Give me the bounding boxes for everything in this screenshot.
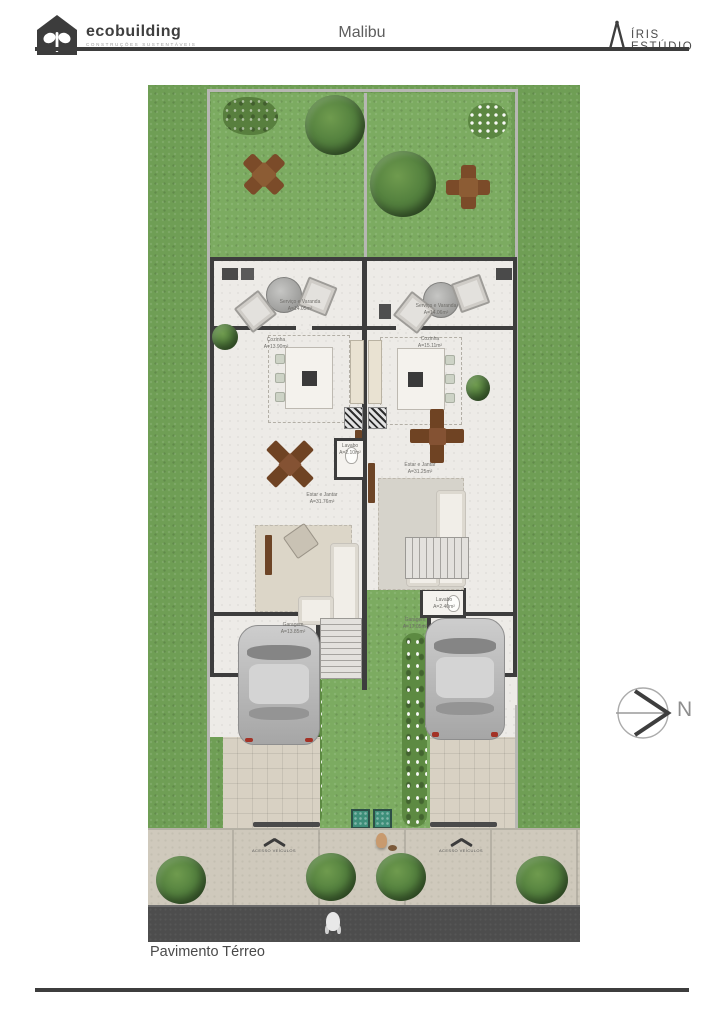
room-label-garagem-right: Garagem A=17.05m² — [377, 617, 453, 630]
room-label-garagem-left: Garagem A=13.85m² — [255, 622, 331, 635]
street-tree — [376, 853, 426, 901]
street — [148, 905, 580, 942]
north-compass: N — [605, 680, 700, 745]
compass-icon — [605, 680, 673, 745]
room-area: A=2.10m² — [330, 450, 370, 457]
room-area: A=31.25m² — [382, 469, 458, 476]
iris-estudio-icon — [607, 19, 627, 49]
front-gate-left — [253, 822, 320, 827]
entry-mat — [368, 407, 387, 429]
center-lawn-left — [320, 679, 362, 828]
plan-sheet: ecobuilding CONSTRUÇÕES SUSTENTÁVEIS Mal… — [0, 0, 724, 1024]
room-area: A=14.05m² — [262, 306, 338, 313]
ramp-arrow-left — [263, 837, 285, 847]
entry-mat — [344, 407, 363, 429]
staircase-right — [405, 537, 469, 579]
white-flower-bed — [468, 103, 508, 139]
cyclist — [326, 912, 340, 931]
room-area: A=15.11m² — [392, 343, 468, 350]
north-label: N — [677, 698, 692, 722]
flower-bed — [223, 97, 278, 135]
kitchen-island-left — [285, 347, 333, 409]
room-label-estar-left: Estar e Jantar A=31.76m² — [284, 492, 360, 505]
shrub — [466, 375, 490, 401]
street-tree — [156, 856, 206, 904]
room-label-cozinha-right: Cozinha A=15.11m² — [392, 336, 468, 349]
site-plan: ACESSO VEÍCULOS ACESSO VEÍCULOS Serviço … — [148, 85, 580, 940]
room-area: A=13.85m² — [255, 629, 331, 636]
kitchen-counter-left — [350, 340, 364, 404]
grill-appliance — [222, 268, 238, 280]
room-label-lavabo-left: Lavabo A=2.10m² — [330, 443, 370, 456]
garden-table-right — [446, 165, 490, 209]
water-heater — [379, 304, 391, 319]
utility-meter — [351, 809, 370, 829]
room-label-cozinha-left: Cozinha A=13.90m² — [238, 337, 314, 350]
car-right — [425, 618, 505, 740]
sidewalk — [148, 828, 580, 907]
ramp-label-right: ACESSO VEÍCULOS — [436, 848, 486, 853]
footer-rule — [35, 988, 689, 992]
room-area: A=2.40m² — [424, 604, 464, 611]
sideboard — [265, 535, 272, 575]
kitchen-counter-right — [368, 340, 382, 404]
tree — [370, 151, 436, 217]
sideboard — [368, 463, 375, 503]
ramp-arrow-right — [450, 837, 472, 847]
utility-meter — [373, 809, 392, 829]
garden-divider-fence — [364, 93, 367, 257]
room-area: A=17.05m² — [377, 624, 453, 631]
room-area: A=31.76m² — [284, 499, 360, 506]
room-label-varanda-left: Serviço e Varanda A=14.05m² — [262, 299, 338, 312]
grill-appliance — [496, 268, 512, 280]
shrub — [212, 324, 238, 350]
front-gate-right — [430, 822, 497, 827]
room-area: A=14.06m² — [398, 310, 474, 317]
street-tree — [306, 853, 356, 901]
room-area: A=13.90m² — [238, 344, 314, 351]
tree — [305, 95, 365, 155]
grill-appliance — [241, 268, 254, 280]
hedge-right — [402, 633, 427, 827]
dog — [388, 845, 397, 851]
ramp-label-left: ACESSO VEÍCULOS — [249, 848, 299, 853]
kitchen-island-right — [397, 348, 445, 410]
header-rule — [35, 47, 689, 51]
room-label-lavabo-right: Lavabo A=2.40m² — [424, 597, 464, 610]
car-left — [238, 625, 320, 745]
door-opening — [296, 326, 312, 330]
dining-table-right — [410, 409, 464, 463]
pedestrian — [376, 833, 387, 848]
room-label-varanda-right: Serviço e Varanda A=14.06m² — [398, 303, 474, 316]
wall-varanda-right — [367, 326, 517, 330]
driveway-right — [430, 737, 515, 828]
street-tree — [516, 856, 568, 904]
driveway-left — [223, 737, 320, 828]
plan-caption: Pavimento Térreo — [150, 944, 265, 960]
room-label-estar-right: Estar e Jantar A=31.25m² — [382, 462, 458, 475]
sofa — [330, 543, 359, 625]
